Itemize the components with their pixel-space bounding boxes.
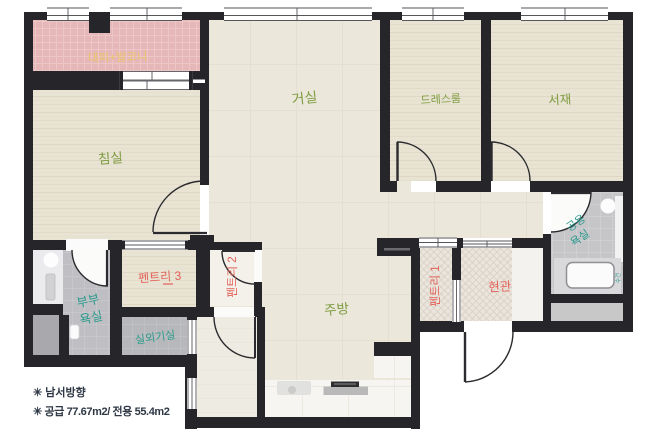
svg-text:서재: 서재 bbox=[548, 92, 572, 107]
svg-text:현관: 현관 bbox=[488, 279, 512, 294]
svg-text:대피+발코니: 대피+발코니 bbox=[88, 50, 148, 65]
svg-text:✳ 남서방향: ✳ 남서방향 bbox=[33, 385, 86, 399]
svg-text:펜트리 2: 펜트리 2 bbox=[226, 256, 239, 297]
svg-text:주방: 주방 bbox=[324, 301, 350, 318]
svg-text:✳ 공급 77.67m2/ 전용 55.4m2: ✳ 공급 77.67m2/ 전용 55.4m2 bbox=[33, 404, 170, 418]
svg-text:침실: 침실 bbox=[98, 150, 124, 167]
svg-text:거실: 거실 bbox=[291, 89, 318, 108]
svg-text:펜트리 1: 펜트리 1 bbox=[429, 265, 442, 306]
svg-text:드레스룸: 드레스룸 bbox=[420, 92, 461, 107]
svg-text:수건: 수건 bbox=[615, 273, 622, 283]
